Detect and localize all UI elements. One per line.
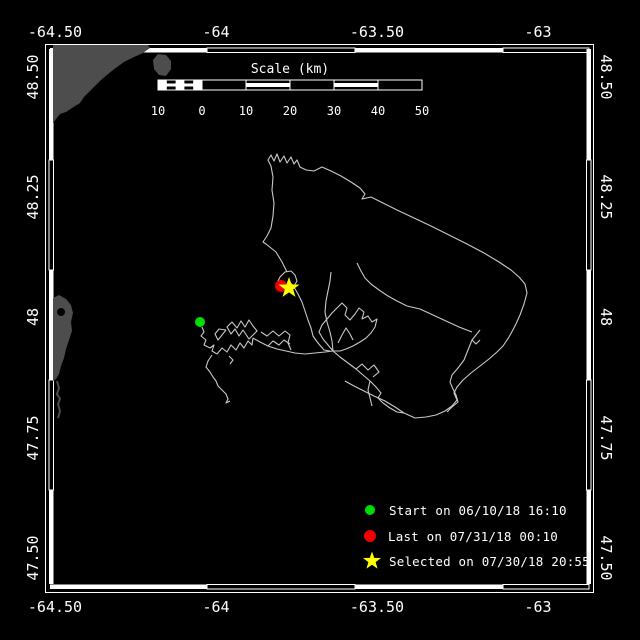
legend-item-selected: Selected on 07/30/18 20:55 [359,551,590,571]
y-tick-right-4: 47.50 [597,513,615,603]
scale-label-4: 30 [314,104,354,118]
scale-label-1: 0 [182,104,222,118]
start-marker[interactable] [195,317,205,327]
y-tick-left-4: 47.50 [24,513,42,603]
map-frame-zebra-right [587,49,592,584]
track-chord [357,263,472,332]
tracking-map-window: -64.50 -64 -63.50 -63 -64.50 -64 -63.50 … [0,0,640,640]
y-tick-right-0: 48.50 [597,32,615,122]
landmass-west-edge [53,295,73,418]
x-tick-bottom-3: -63 [493,598,583,616]
last-legend-marker [364,530,376,542]
y-tick-left-3: 47.75 [24,393,42,483]
y-tick-right-1: 48.25 [597,152,615,242]
y-tick-right-2: 48 [597,272,615,362]
scale-label-0: 10 [138,104,178,118]
start-legend-label: Start on 06/10/18 16:10 [389,503,567,518]
scale-label-6: 50 [402,104,442,118]
last-legend-label: Last on 07/31/18 00:10 [388,529,558,544]
map-frame-zebra-bottom [50,585,589,590]
y-tick-left-0: 48.50 [24,32,42,122]
track-loop [263,154,527,418]
scale-bar-title: Scale (km) [251,62,329,77]
scale-bar [158,80,422,90]
map-frame-zebra-left [49,49,54,584]
track-lines [201,154,527,418]
legend-item-last: Last on 07/31/18 00:10 [365,526,558,546]
scale-label-3: 20 [270,104,310,118]
x-tick-bottom-1: -64 [171,598,261,616]
legend-item-start: Start on 06/10/18 16:10 [365,500,567,520]
selected-legend-label: Selected on 07/30/18 20:55 [389,554,590,569]
start-legend-marker [365,505,375,515]
y-tick-left-1: 48.25 [24,152,42,242]
y-tick-right-3: 47.75 [597,393,615,483]
scale-label-2: 10 [226,104,266,118]
x-tick-top-1: -64 [171,23,261,41]
selected-legend-star-icon [359,551,385,571]
x-tick-top-2: -63.50 [332,23,422,41]
y-tick-left-2: 48 [24,272,42,362]
scale-label-5: 40 [358,104,398,118]
island-blob [153,54,171,76]
x-tick-top-3: -63 [493,23,583,41]
x-tick-bottom-2: -63.50 [332,598,422,616]
